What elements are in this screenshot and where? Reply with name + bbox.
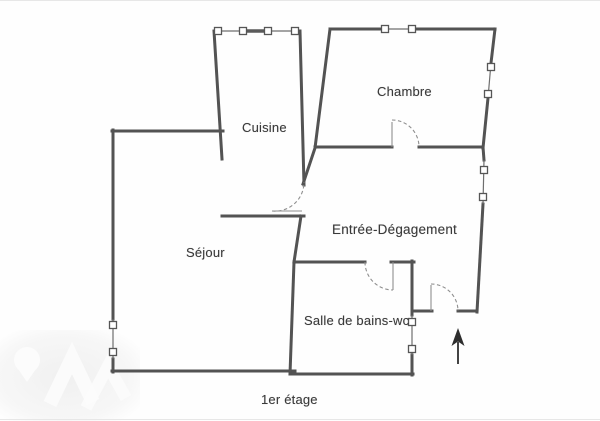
wall-cuisine-left [214,31,222,159]
window-icon [110,322,117,329]
window-icon [409,346,416,353]
window-icon [215,28,222,35]
room-label-sejour: Séjour [186,245,225,260]
room-label-chambre: Chambre [377,84,432,99]
room-label-cuisine: Cuisine [242,120,287,135]
wall-chambre-right-lower [483,98,488,148]
bottom-border-line [0,419,600,420]
door-swing-icon [365,262,393,290]
door-swing-icon [431,284,458,311]
window-icon [240,28,247,35]
entrance-arrow-icon [452,328,465,364]
watermark-logo [0,330,140,421]
window-icon [488,64,495,71]
window-icon [265,28,272,35]
floor-label: 1er étage [261,392,318,407]
window-icon [485,91,492,98]
window-icon [409,319,416,326]
wall-chambre-right-upper [491,29,495,63]
room-label-salle-de-bains-wc: Salle de bains-wc [304,313,409,328]
wall-entree-left-slant [294,216,301,262]
wall-sdb-left-slant [290,262,294,374]
window-icon [481,167,488,174]
floor-plan-page: Cuisine Chambre Séjour Entrée-Dégagement… [0,0,600,421]
wall-entree-right-upper [483,147,484,160]
wall-entree-right-lower [477,204,483,312]
door-swing-icon [272,182,304,211]
room-label-entree-degagement: Entrée-Dégagement [332,222,457,237]
wall-cuisine-right [300,31,304,185]
wall-chambre-left-slant [303,29,330,184]
floor-plan-canvas [0,0,600,421]
window-icon [480,194,487,201]
door-swing-icon [392,120,419,147]
window-icon [409,26,416,33]
window-icon [382,26,389,33]
window-icon [292,28,299,35]
window-icon [110,349,117,356]
